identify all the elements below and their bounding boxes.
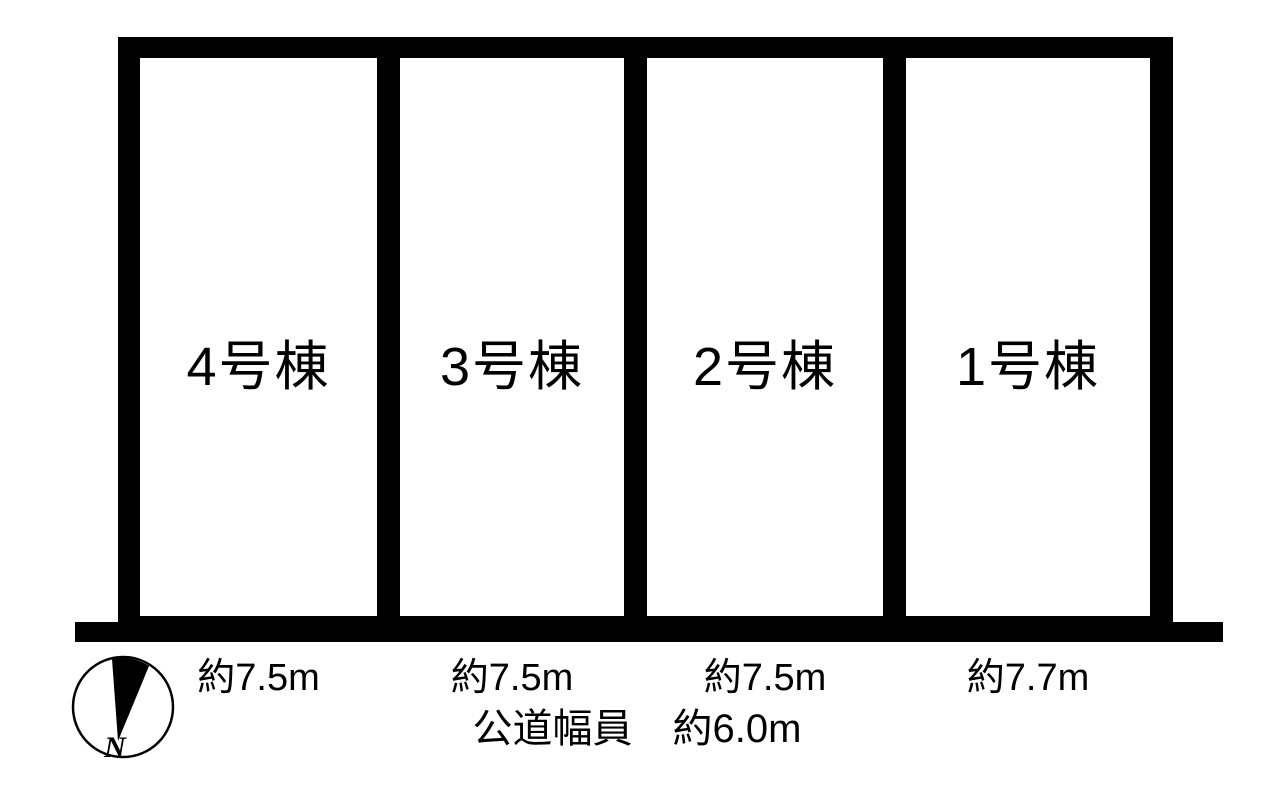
compass-icon: N bbox=[71, 655, 175, 759]
compass-north-label: N bbox=[103, 731, 127, 764]
road-width-label: 公道幅員 約6.0m bbox=[473, 696, 802, 754]
lot-1-width-cell: 約7.7m bbox=[906, 646, 1150, 701]
lot-3-width-label: 約7.5m bbox=[451, 646, 573, 701]
lot-1-width-label: 約7.7m bbox=[967, 646, 1089, 701]
lot-3-label: 3号棟 bbox=[440, 322, 584, 401]
lot-4-width-cell: 約7.5m bbox=[140, 646, 377, 701]
road-line bbox=[75, 622, 1223, 642]
lot-2-width-cell: 約7.5m bbox=[647, 646, 883, 701]
lot-2-label: 2号棟 bbox=[693, 322, 837, 401]
lot-1: 1号棟 bbox=[906, 58, 1150, 616]
lot-4: 4号棟 bbox=[140, 58, 377, 616]
lot-4-label: 4号棟 bbox=[186, 322, 330, 401]
lot-1-label: 1号棟 bbox=[956, 322, 1100, 401]
lot-2: 2号棟 bbox=[647, 58, 883, 616]
lot-3: 3号棟 bbox=[400, 58, 624, 616]
lot-layout-diagram: 4号棟 3号棟 2号棟 1号棟 約7.5m 約7.5m 約7.5m 約7.7m … bbox=[0, 0, 1280, 809]
lot-4-width-label: 約7.5m bbox=[197, 646, 319, 701]
lot-2-width-label: 約7.5m bbox=[704, 646, 826, 701]
lot-block: 4号棟 3号棟 2号棟 1号棟 bbox=[118, 37, 1173, 622]
lot-3-width-cell: 約7.5m bbox=[400, 646, 624, 701]
width-labels-row: 約7.5m 約7.5m 約7.5m 約7.7m bbox=[118, 646, 1173, 701]
